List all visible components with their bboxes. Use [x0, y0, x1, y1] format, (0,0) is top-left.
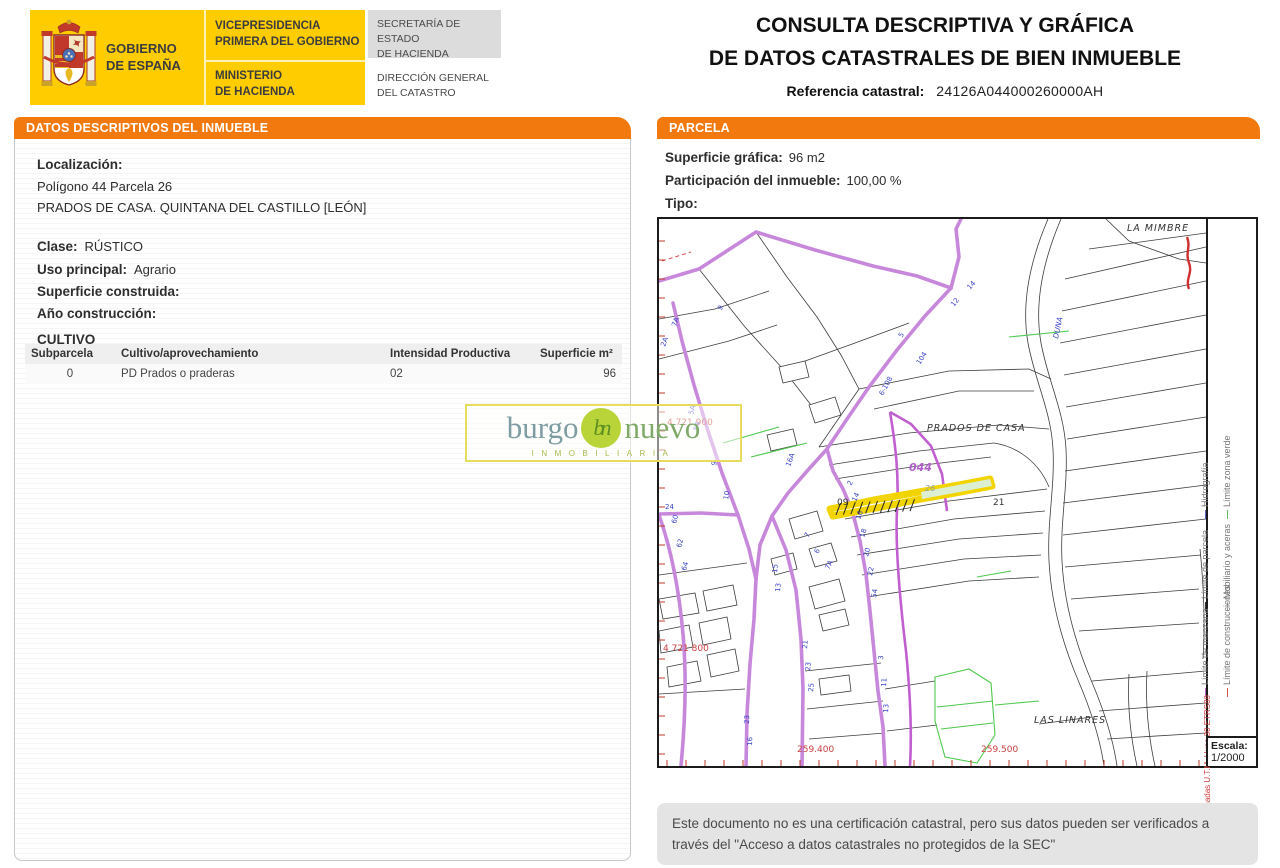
svg-text:21: 21 [801, 640, 810, 650]
watermark-word-burgo: burgo [507, 410, 579, 446]
legend-construcciones: —Límite de construcciones [1220, 585, 1234, 697]
coord-label-259400: 259.400 [797, 745, 834, 755]
svg-text:3: 3 [877, 655, 885, 660]
secretaria-estado-label: SECRETARÍA DE ESTADO DE HACIENDA [368, 10, 501, 58]
disclaimer-note: Este documento no es una certificación c… [657, 803, 1258, 865]
svg-text:16: 16 [746, 736, 754, 746]
page-title-line2: DE DATOS CATASTRALES DE BIEN INMUEBLE [645, 43, 1245, 76]
ano-construccion-row: Año construcción: [37, 306, 163, 321]
parcela-info: Superficie gráfica:96 m2 Participación d… [665, 148, 901, 217]
watermark-word-nuevo: nuevo [625, 410, 701, 446]
svg-text:13: 13 [882, 704, 891, 713]
gobierno-de-espana-label: GOBIERNO DE ESPAÑA [106, 41, 181, 75]
divider [206, 60, 365, 62]
legend-line-swatch-red: — [1222, 688, 1232, 697]
localizacion-line1: Polígono 44 Parcela 26 [37, 179, 172, 194]
agency-logo-icon: bn [581, 408, 621, 448]
document-title-block: CONSULTA DESCRIPTIVA Y GRÁFICA DE DATOS … [645, 10, 1245, 99]
construction-limit-lines [662, 237, 1190, 289]
label-parcel-21: 21 [993, 498, 1004, 508]
datos-descriptivos-panel: Localización: Polígono 44 Parcela 26 PRA… [14, 139, 631, 861]
superficie-grafica-row: Superficie gráfica:96 m2 [665, 148, 901, 169]
map-labels: LA MIMBRE PRADOS DE CASA LAS LINARES 044… [663, 223, 1189, 755]
cell-cultivo: PD Prados o praderas [115, 364, 384, 384]
label-prados-de-casa: PRADOS DE CASA [927, 423, 1026, 434]
reference-label: Referencia catastral: [787, 83, 925, 99]
label-la-mimbre: LA MIMBRE [1127, 223, 1189, 234]
label-stream-name: DUNA [1051, 316, 1064, 339]
stream-squiggle [1187, 237, 1190, 289]
svg-text:23: 23 [743, 715, 751, 724]
svg-text:9: 9 [716, 304, 725, 312]
localizacion-label: Localización: [37, 157, 123, 172]
reference-value: 24126A044000260000AH [936, 83, 1103, 99]
svg-text:12: 12 [949, 296, 961, 308]
label-las-linares: LAS LINARES [1034, 715, 1106, 726]
spain-coat-of-arms-icon [40, 17, 98, 97]
col-superficie: Superficie m² [534, 344, 622, 364]
svg-text:14: 14 [966, 279, 978, 291]
localizacion-line2: PRADOS DE CASA. QUINTANA DEL CASTILLO [L… [37, 200, 366, 215]
svg-text:25: 25 [807, 683, 816, 693]
clase-row: Clase:RÚSTICO [37, 239, 143, 254]
col-subparcela: Subparcela [25, 344, 115, 364]
uso-principal-row: Uso principal:Agrario [37, 262, 176, 277]
scale-value: 1/2000 [1211, 752, 1256, 764]
cultivo-table: Subparcela Cultivo/aprovechamiento Inten… [25, 344, 622, 384]
page-title-line1: CONSULTA DESCRIPTIVA Y GRÁFICA [645, 10, 1245, 43]
legend-line-swatch-green: — [1222, 510, 1232, 519]
participacion-row: Participación del inmueble:100,00 % [665, 171, 901, 192]
svg-text:20: 20 [862, 547, 872, 558]
svg-text:23: 23 [804, 662, 813, 672]
svg-text:15: 15 [771, 564, 780, 574]
label-parcel-26: 26 [925, 484, 935, 493]
watermark-wordmark: burgo bn nuevo [467, 406, 740, 450]
legend-zona-verde: —Límite zona verde [1220, 435, 1234, 519]
legend-limite-parcela: —Límite de parcela [1198, 530, 1212, 611]
svg-text:2: 2 [846, 479, 855, 487]
ministerio-label: MINISTERIO DE HACIENDA [215, 68, 295, 100]
agency-watermark: burgo bn nuevo INMOBILIARIA [465, 404, 742, 462]
col-cultivo: Cultivo/aprovechamiento [115, 344, 384, 364]
superficie-grafica-value: 96 m2 [789, 150, 825, 165]
direccion-general-catastro-label: DIRECCIÓN GENERAL DEL CATASTRO [377, 71, 489, 101]
legend-line-swatch-blue: — [1200, 510, 1210, 519]
superficie-construida-row: Superficie construida: [37, 284, 187, 299]
scale-label: Escala: [1211, 740, 1256, 752]
svg-text:62: 62 [675, 538, 685, 549]
svg-text:18: 18 [858, 528, 868, 539]
cell-subparcela: 0 [25, 364, 115, 384]
svg-text:54: 54 [870, 588, 880, 599]
svg-text:104: 104 [915, 350, 929, 366]
cultivo-data-row: 0 PD Prados o praderas 02 96 [25, 364, 622, 384]
section-header-parcela: PARCELA [657, 117, 1260, 139]
map-legend: —Hidrografía —Límite de parcela —Límite … [1206, 219, 1256, 766]
legend-hidrografia: —Hidrografía [1198, 462, 1212, 519]
vicepresidencia-label: VICEPRESIDENCIA PRIMERA DEL GOBIERNO [215, 18, 359, 50]
cadastral-reference-row: Referencia catastral:24126A044000260000A… [645, 83, 1245, 99]
col-intensidad: Intensidad Productiva [384, 344, 534, 364]
svg-text:11: 11 [880, 678, 889, 687]
svg-text:22: 22 [866, 566, 876, 576]
cadastral-map: LA MIMBRE PRADOS DE CASA LAS LINARES 044… [657, 217, 1258, 768]
map-scale-box: Escala: 1/2000 [1206, 736, 1256, 766]
coord-label-259500: 259.500 [981, 745, 1018, 755]
tipo-row: Tipo: [665, 194, 901, 215]
legend-limite-manzana: —Límite de manzana [1198, 608, 1212, 697]
section-header-datos-descriptivos: DATOS DESCRIPTIVOS DEL INMUEBLE [14, 117, 631, 139]
svg-text:6-108: 6-108 [878, 375, 895, 397]
svg-text:2A: 2A [659, 336, 670, 348]
coord-label-4721800: 4 721 800 [663, 644, 709, 654]
government-logo-block: GOBIERNO DE ESPAÑA VICEPRESIDENCIA PRIME… [30, 10, 365, 105]
watermark-tagline: INMOBILIARIA [467, 449, 740, 458]
cell-intensidad: 02 [384, 364, 534, 384]
svg-text:64: 64 [680, 560, 690, 571]
participacion-value: 100,00 % [847, 173, 902, 188]
svg-text:10: 10 [722, 490, 731, 500]
cultivo-header-row: Subparcela Cultivo/aprovechamiento Inten… [25, 344, 622, 364]
svg-text:24: 24 [665, 503, 674, 511]
svg-text:16A: 16A [784, 452, 796, 468]
clase-value: RÚSTICO [85, 239, 144, 254]
divider [204, 10, 206, 105]
cadastral-map-drawing: LA MIMBRE PRADOS DE CASA LAS LINARES 044… [659, 219, 1206, 766]
label-block-044: 044 [909, 461, 932, 474]
cell-superficie: 96 [534, 364, 622, 384]
svg-text:13: 13 [774, 583, 783, 593]
cadastral-document-page: GOBIERNO DE ESPAÑA VICEPRESIDENCIA PRIME… [0, 0, 1280, 868]
svg-text:60: 60 [670, 514, 680, 525]
uso-value: Agrario [134, 262, 176, 277]
